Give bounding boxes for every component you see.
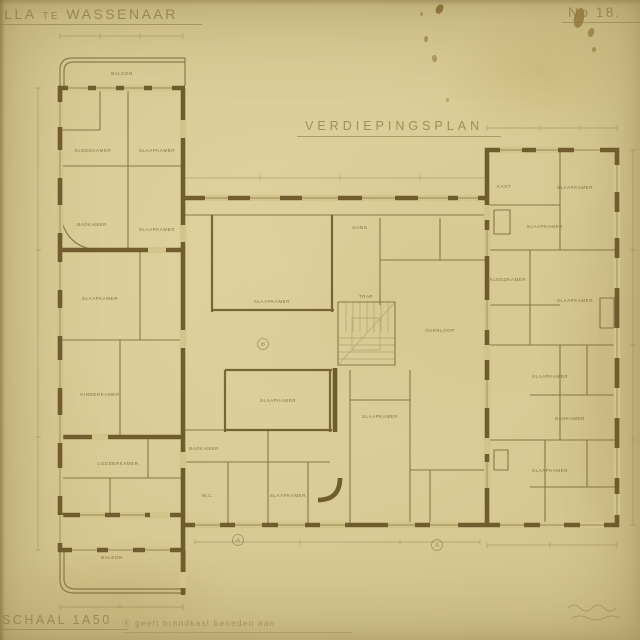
room-label-slaapkamer: SLAAPKAMER bbox=[557, 185, 593, 190]
room-label-slaapkamer: SLAAPKAMER bbox=[254, 299, 290, 304]
room-label-slaapkamer: SLAAPKAMER bbox=[362, 414, 398, 419]
room-label-slaapkamer: SLAAPKAMER bbox=[557, 298, 593, 303]
staircase bbox=[338, 302, 395, 365]
room-label-badkamer: BADKAMER bbox=[189, 446, 219, 451]
room-label-slaapkamer: SLAAPKAMER bbox=[139, 148, 175, 153]
room-label-w-c-: W.C. bbox=[202, 493, 214, 498]
footnote: Ⓐ geeft brandkast beneden aan bbox=[122, 617, 353, 633]
room-label-gang: GANG bbox=[352, 225, 368, 230]
room-label-logeerkamer: LOGEERKAMER bbox=[98, 461, 139, 466]
room-label-balkon: BALKON bbox=[111, 71, 133, 76]
sheet-number: No 18. bbox=[562, 4, 640, 23]
room-label-kinderkamer: KINDERKAMER bbox=[80, 392, 119, 397]
room-label-balkon: BALKON bbox=[101, 555, 123, 560]
room-labels: BALKONKLEEDKAMERSLAAPKAMERBADKAMERSLAAPK… bbox=[75, 71, 593, 560]
room-label-badkamer: BADKAMER bbox=[555, 416, 585, 421]
room-label-slaapkamer: SLAAPKAMER bbox=[532, 468, 568, 473]
room-label-slaapkamer: SLAAPKAMER bbox=[260, 398, 296, 403]
interior-partitions bbox=[60, 88, 617, 525]
room-label-kast: KAST bbox=[497, 184, 511, 189]
door-openings bbox=[92, 120, 487, 588]
room-label-overloop: OVERLOOP bbox=[425, 328, 455, 333]
plan-title: VERDIEPINGSPLAN bbox=[297, 119, 501, 137]
project-title: VILLA te WASSENAAR bbox=[0, 6, 202, 25]
scanned-floorplan-sheet: { "sheet": { "project_title": "VILLA te … bbox=[0, 0, 640, 640]
room-label-kleedkamer: KLEEDKAMER bbox=[490, 277, 527, 282]
marker-letter-a: A bbox=[236, 538, 240, 544]
room-label-slaapkamer: SLAAPKAMER bbox=[139, 227, 175, 232]
room-label-slaapkamer: SLAAPKAMER bbox=[532, 374, 568, 379]
room-label-badkamer: BADKAMER bbox=[77, 222, 107, 227]
room-label-trap: TRAP bbox=[359, 294, 373, 299]
signature-scribble bbox=[568, 605, 620, 620]
marker-letter-b: B bbox=[261, 342, 265, 348]
scale-label: SCHAAL 1A50 bbox=[2, 613, 128, 630]
room-label-slaapkamer: SLAAPKAMER bbox=[270, 493, 306, 498]
room-label-kleedkamer: KLEEDKAMER bbox=[75, 148, 112, 153]
floorplan-drawing: BALKONKLEEDKAMERSLAAPKAMERBADKAMERSLAAPK… bbox=[0, 0, 640, 640]
room-label-slaapkamer: SLAAPKAMER bbox=[82, 296, 118, 301]
room-label-slaapkamer: SLAAPKAMER bbox=[527, 224, 563, 229]
marker-letter-a: A bbox=[435, 543, 439, 549]
